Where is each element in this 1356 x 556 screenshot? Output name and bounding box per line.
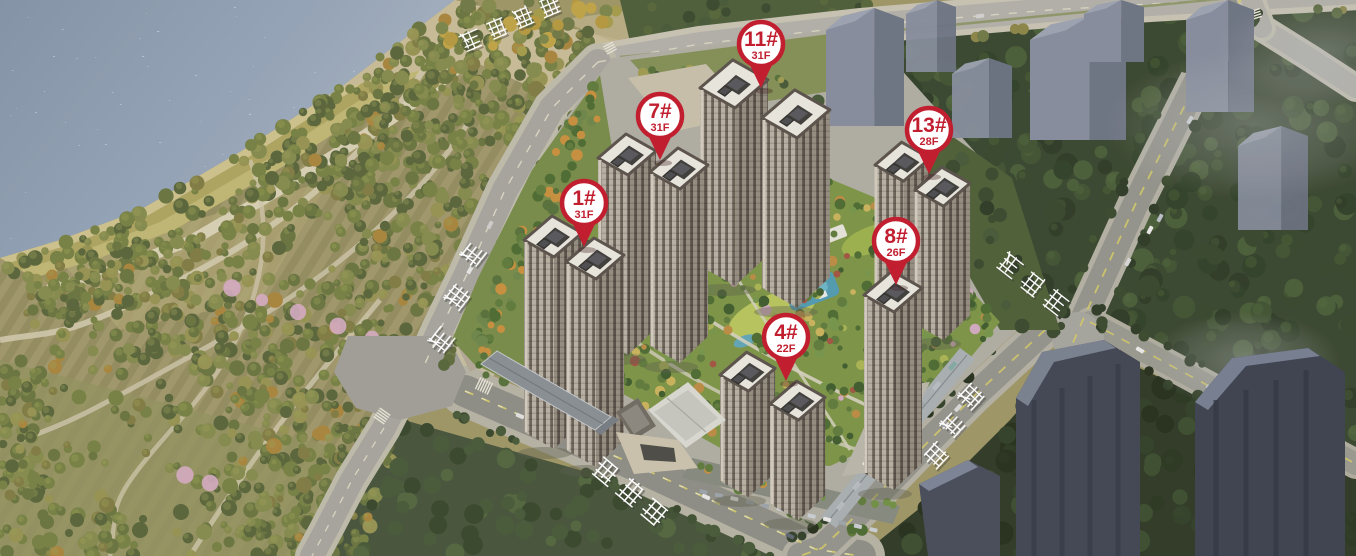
svg-text:11#: 11# <box>744 28 778 51</box>
svg-text:8#: 8# <box>884 225 908 248</box>
svg-text:31F: 31F <box>752 50 771 62</box>
svg-text:13#: 13# <box>911 114 946 137</box>
svg-text:26F: 26F <box>887 247 906 259</box>
svg-text:28F: 28F <box>920 136 939 148</box>
svg-text:22F: 22F <box>777 343 796 355</box>
svg-text:31F: 31F <box>651 122 670 134</box>
svg-text:31F: 31F <box>575 209 594 221</box>
svg-text:7#: 7# <box>648 100 672 123</box>
svg-text:1#: 1# <box>572 187 596 210</box>
svg-text:4#: 4# <box>774 321 798 344</box>
